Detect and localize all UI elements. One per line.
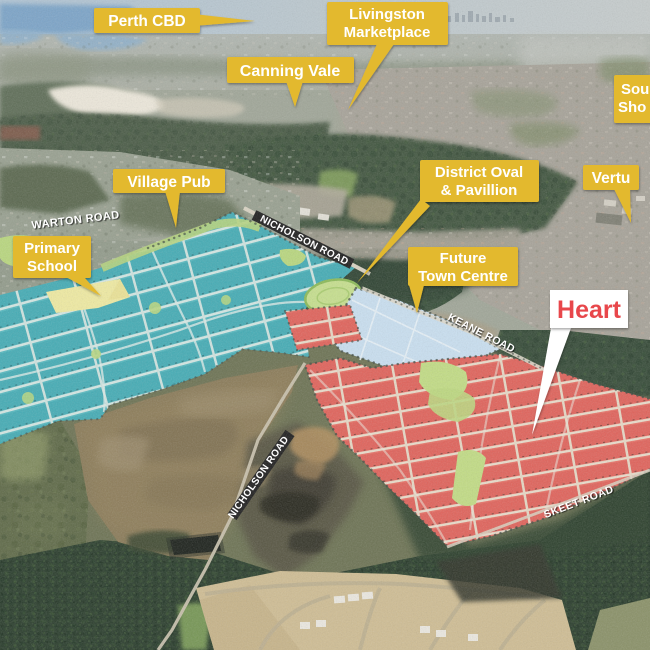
svg-text:School: School — [27, 258, 77, 275]
svg-text:Primary: Primary — [24, 240, 81, 257]
svg-text:Vertu: Vertu — [592, 170, 631, 187]
svg-text:Town Centre: Town Centre — [418, 268, 508, 285]
svg-text:Future: Future — [440, 250, 487, 267]
svg-text:Sou: Sou — [621, 81, 649, 98]
svg-text:Sho: Sho — [618, 99, 646, 116]
svg-text:Livingston: Livingston — [349, 6, 425, 23]
svg-text:District Oval: District Oval — [435, 164, 523, 181]
svg-text:Heart: Heart — [557, 296, 622, 324]
svg-text:& Pavillion: & Pavillion — [441, 182, 518, 199]
svg-text:Perth CBD: Perth CBD — [108, 13, 186, 30]
svg-text:Marketplace: Marketplace — [344, 24, 431, 41]
svg-text:Canning Vale: Canning Vale — [240, 63, 341, 80]
svg-text:Village Pub: Village Pub — [127, 174, 210, 191]
